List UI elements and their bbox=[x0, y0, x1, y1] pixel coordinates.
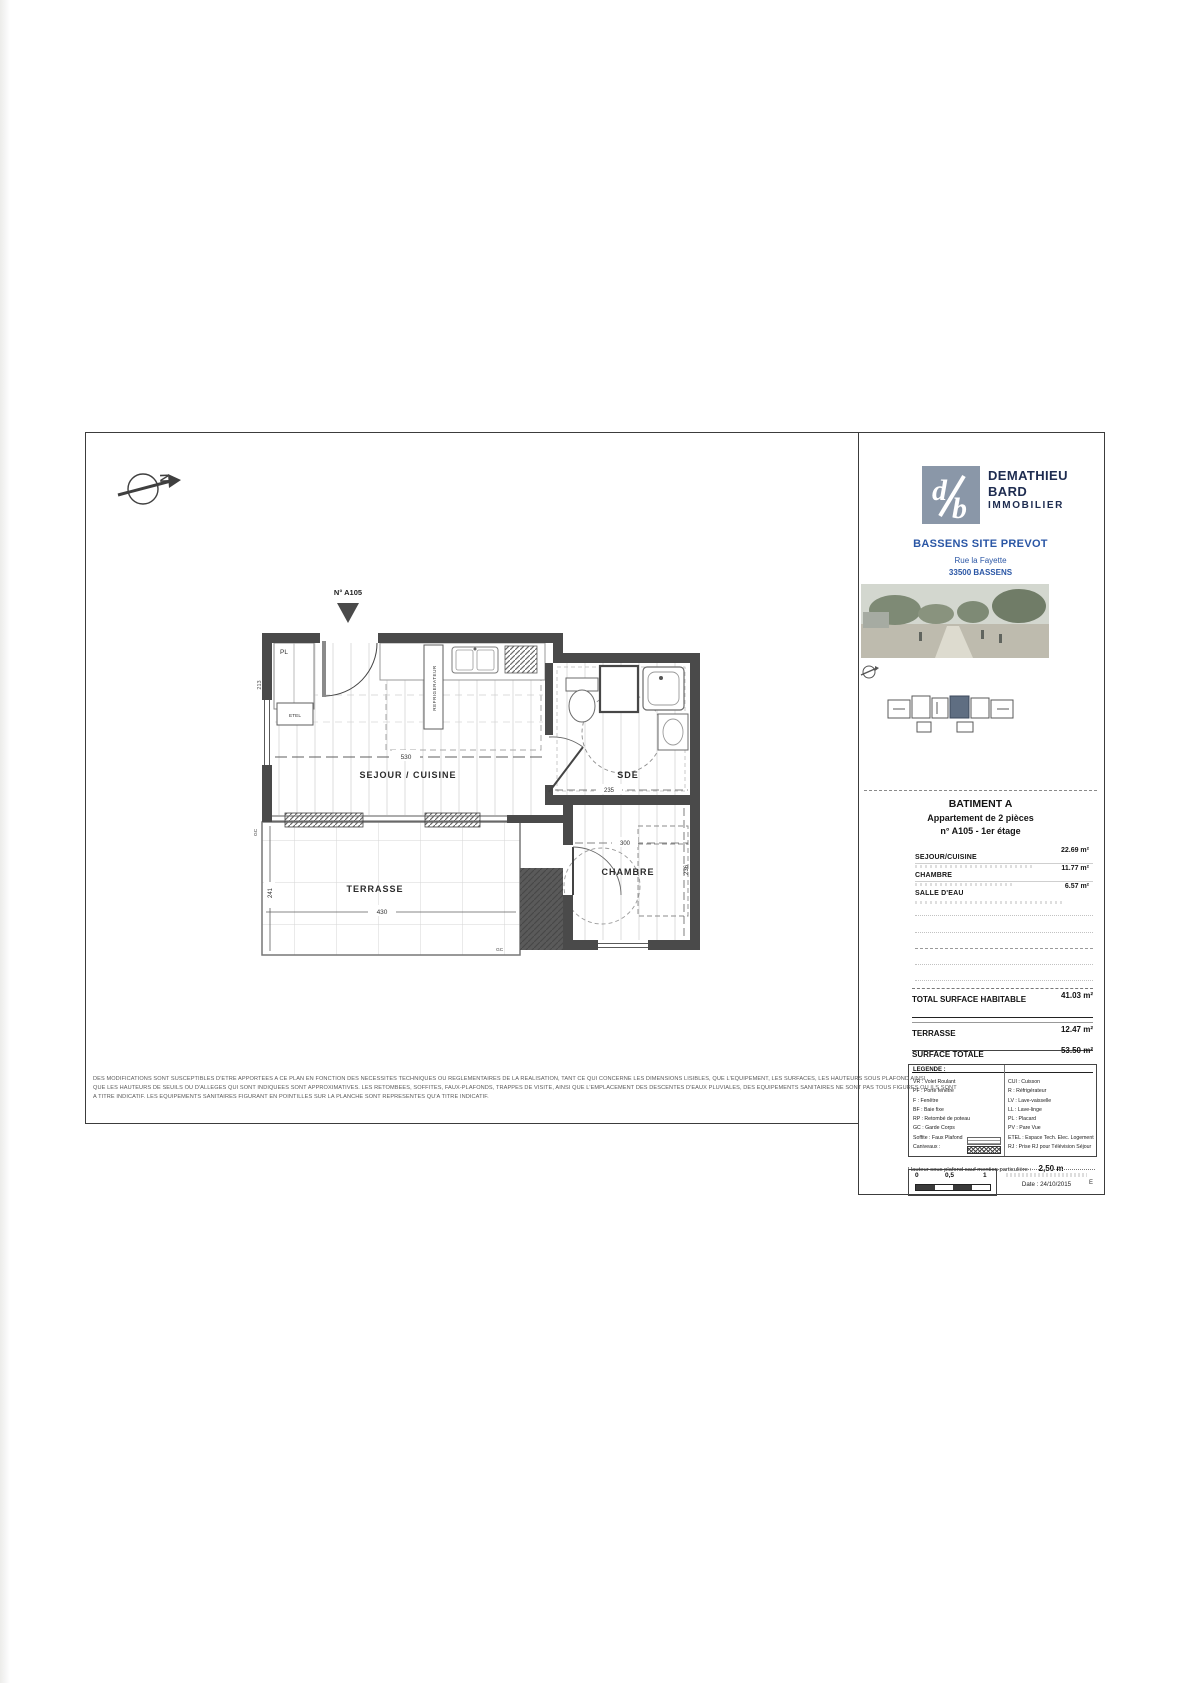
dim-bath-width: 235 bbox=[604, 788, 615, 794]
legend-item: LV : Lave-vaisselle bbox=[1008, 1097, 1094, 1106]
legend-item: R : Réfrigérateur bbox=[1008, 1087, 1094, 1096]
total-label: TOTAL SURFACE HABITABLE bbox=[912, 995, 1026, 1004]
building-title: BATIMENT A bbox=[858, 798, 1103, 810]
legend-item: BF : Baie fixe bbox=[913, 1106, 970, 1115]
scan-artifact bbox=[0, 0, 10, 1683]
legend-title: LEGENDE : bbox=[913, 1067, 946, 1073]
legend-item: RJ : Prise RJ pour Télévision Séjour bbox=[1008, 1143, 1094, 1152]
site-photo bbox=[861, 584, 1049, 658]
area-row-label: SALLE D'EAU bbox=[915, 890, 964, 897]
svg-text:b: b bbox=[952, 492, 967, 524]
soffit-swatch bbox=[967, 1137, 1001, 1145]
kitchen-sink bbox=[452, 647, 498, 673]
date-cell: Date : 24/10/2015 E bbox=[998, 1169, 1095, 1195]
legend-item: LL : Lave-linge bbox=[1008, 1106, 1094, 1115]
terrace-label: TERRASSE bbox=[346, 884, 403, 894]
divider bbox=[864, 790, 1097, 791]
area-row-label: SEJOUR/CUISINE bbox=[915, 854, 977, 861]
legend-item: CUI : Cuisson bbox=[1008, 1078, 1094, 1087]
north-arrow-icon: N bbox=[118, 474, 181, 504]
terrace-total-value: 12.47 m² bbox=[1061, 1025, 1093, 1034]
project-name: BASSENS SITE PREVOT bbox=[858, 538, 1103, 550]
date-label: Date : 24/10/2015 bbox=[998, 1181, 1095, 1188]
table-row: SALLE D'EAU 6.57 m² bbox=[915, 882, 1093, 899]
grand-total-label: SURFACE TOTALE bbox=[912, 1050, 984, 1059]
caniveaux-swatch bbox=[967, 1146, 1001, 1154]
guardrail-label-2: GC bbox=[496, 947, 504, 953]
shower-tray bbox=[643, 667, 684, 710]
area-row-value: 22.69 m² bbox=[1061, 847, 1089, 854]
window-sill-1 bbox=[285, 813, 363, 827]
dim-bedroom-width: 300 bbox=[620, 841, 631, 847]
area-row-label: CHAMBRE bbox=[915, 872, 952, 879]
closet-label: PL bbox=[280, 649, 288, 656]
total-row: TOTAL SURFACE HABITABLE 41.03 m² bbox=[912, 988, 1093, 1018]
shower-screen bbox=[600, 666, 638, 712]
fridge-label: REFRIGERATEUR bbox=[432, 665, 437, 711]
dim-left-wall: 213 bbox=[257, 680, 263, 689]
legend-item: F : Fenêtre bbox=[913, 1097, 970, 1106]
legend-right-column: CUI : Cuisson R : Réfrigérateur LV : Lav… bbox=[1008, 1078, 1094, 1152]
company-name-3: IMMOBILIER bbox=[988, 500, 1064, 511]
scale-bar-box: 0 0,5 1 bbox=[908, 1169, 997, 1196]
company-name-1: DEMATHIEU bbox=[988, 468, 1068, 483]
entrance-marker-icon bbox=[337, 603, 359, 623]
dim-terrace-height: 241 bbox=[268, 887, 274, 898]
cooktop-icon bbox=[505, 646, 537, 673]
unit-marker-label: N° A105 bbox=[334, 588, 362, 597]
area-row-value: 11.77 m² bbox=[1061, 865, 1089, 872]
north-letter: N bbox=[157, 474, 171, 483]
legend-item: PL : Placard bbox=[1008, 1115, 1094, 1124]
building-subtitle: Appartement de 2 pièces bbox=[858, 813, 1103, 823]
legend-item: Soffite : Faux Plafond bbox=[913, 1134, 970, 1143]
total-value: 41.03 m² bbox=[1061, 991, 1093, 1000]
unit-line: n° A105 - 1er étage bbox=[858, 826, 1103, 836]
living-room-label: SEJOUR / CUISINE bbox=[359, 770, 456, 780]
plan-sheet: N N° A105 REFRIGERATEUR PL ETEL bbox=[0, 0, 1190, 1683]
area-row-value: 6.57 m² bbox=[1065, 883, 1089, 890]
scale-bar bbox=[915, 1184, 991, 1191]
project-address-2: 33500 BASSENS bbox=[858, 568, 1103, 577]
table-row: SEJOUR/CUISINE 22.69 m² bbox=[915, 846, 1093, 864]
legend-item: PV : Pare Vue bbox=[1008, 1124, 1094, 1133]
grand-total-value: 53.50 m² bbox=[1061, 1046, 1093, 1055]
legend-box: LEGENDE : VR : Volet Roulant PF : Porte … bbox=[908, 1064, 1097, 1157]
revision-letter: E bbox=[1089, 1180, 1093, 1186]
terrace-total-label: TERRASSE bbox=[912, 1029, 956, 1038]
disclaimer-line-2: QUE LES HAUTEURS DE SEUILS OU D'ALLEGES … bbox=[93, 1085, 957, 1091]
floor-plan: N N° A105 REFRIGERATEUR PL ETEL bbox=[85, 432, 858, 1122]
svg-text:d: d bbox=[932, 474, 948, 507]
dim-living-width: 530 bbox=[401, 754, 412, 761]
window-sill-2 bbox=[425, 813, 480, 827]
bedroom-label: CHAMBRE bbox=[602, 867, 655, 877]
scale-tick: 1 bbox=[983, 1172, 987, 1179]
legend-item: ETEL : Espace Tech. Elec. Logement bbox=[1008, 1134, 1094, 1143]
key-plan bbox=[885, 684, 1030, 742]
legend-item: GC : Garde Corps bbox=[913, 1124, 970, 1133]
mini-compass-icon bbox=[858, 660, 880, 682]
legend-item: RP : Retombé de poteau bbox=[913, 1115, 970, 1124]
wc-bowl bbox=[569, 690, 595, 722]
table-row: CHAMBRE 11.77 m² bbox=[915, 864, 1093, 882]
dim-terrace-width: 430 bbox=[377, 909, 388, 916]
project-address-1: Rue la Fayette bbox=[858, 556, 1103, 565]
scale-tick: 0 bbox=[915, 1172, 919, 1179]
legend-item: Caniveaux : bbox=[913, 1143, 970, 1152]
disclaimer-line-3: A TITRE INDICATIF. LES EQUIPEMENTS SANIT… bbox=[93, 1094, 489, 1100]
wc-cistern bbox=[566, 678, 598, 691]
guardrail-label-1: GC bbox=[253, 828, 259, 836]
company-logo-icon: d b bbox=[922, 466, 980, 524]
etel-label: ETEL bbox=[289, 713, 301, 719]
dim-bedroom-height: 236 bbox=[684, 864, 690, 875]
bath-room-label: SDE bbox=[617, 770, 639, 780]
key-plan-highlighted-unit bbox=[950, 696, 969, 718]
disclaimer-line-1: DES MODIFICATIONS SONT SUSCEPTIBLES D'ET… bbox=[93, 1076, 926, 1082]
area-table: SEJOUR/CUISINE 22.69 m² CHAMBRE 11.77 m²… bbox=[915, 846, 1093, 899]
scale-tick: 0,5 bbox=[945, 1172, 954, 1179]
company-name-2: BARD bbox=[988, 484, 1027, 499]
